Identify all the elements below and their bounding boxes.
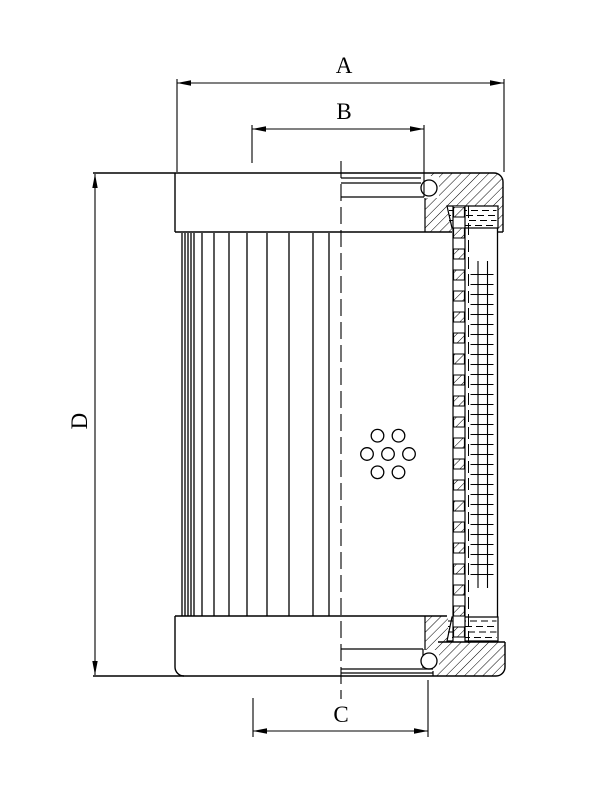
dim-d-label: D [67, 413, 92, 430]
dim-c-label: C [333, 702, 348, 727]
dim-b-label: B [336, 99, 351, 124]
wire-mesh [471, 261, 494, 588]
dim-a-label: A [336, 53, 353, 78]
perforated-core-strip [453, 206, 465, 642]
drawing-page: A B C D [0, 0, 612, 792]
paper-background [0, 0, 612, 792]
filter-element-drawing: A B C D [0, 0, 612, 792]
